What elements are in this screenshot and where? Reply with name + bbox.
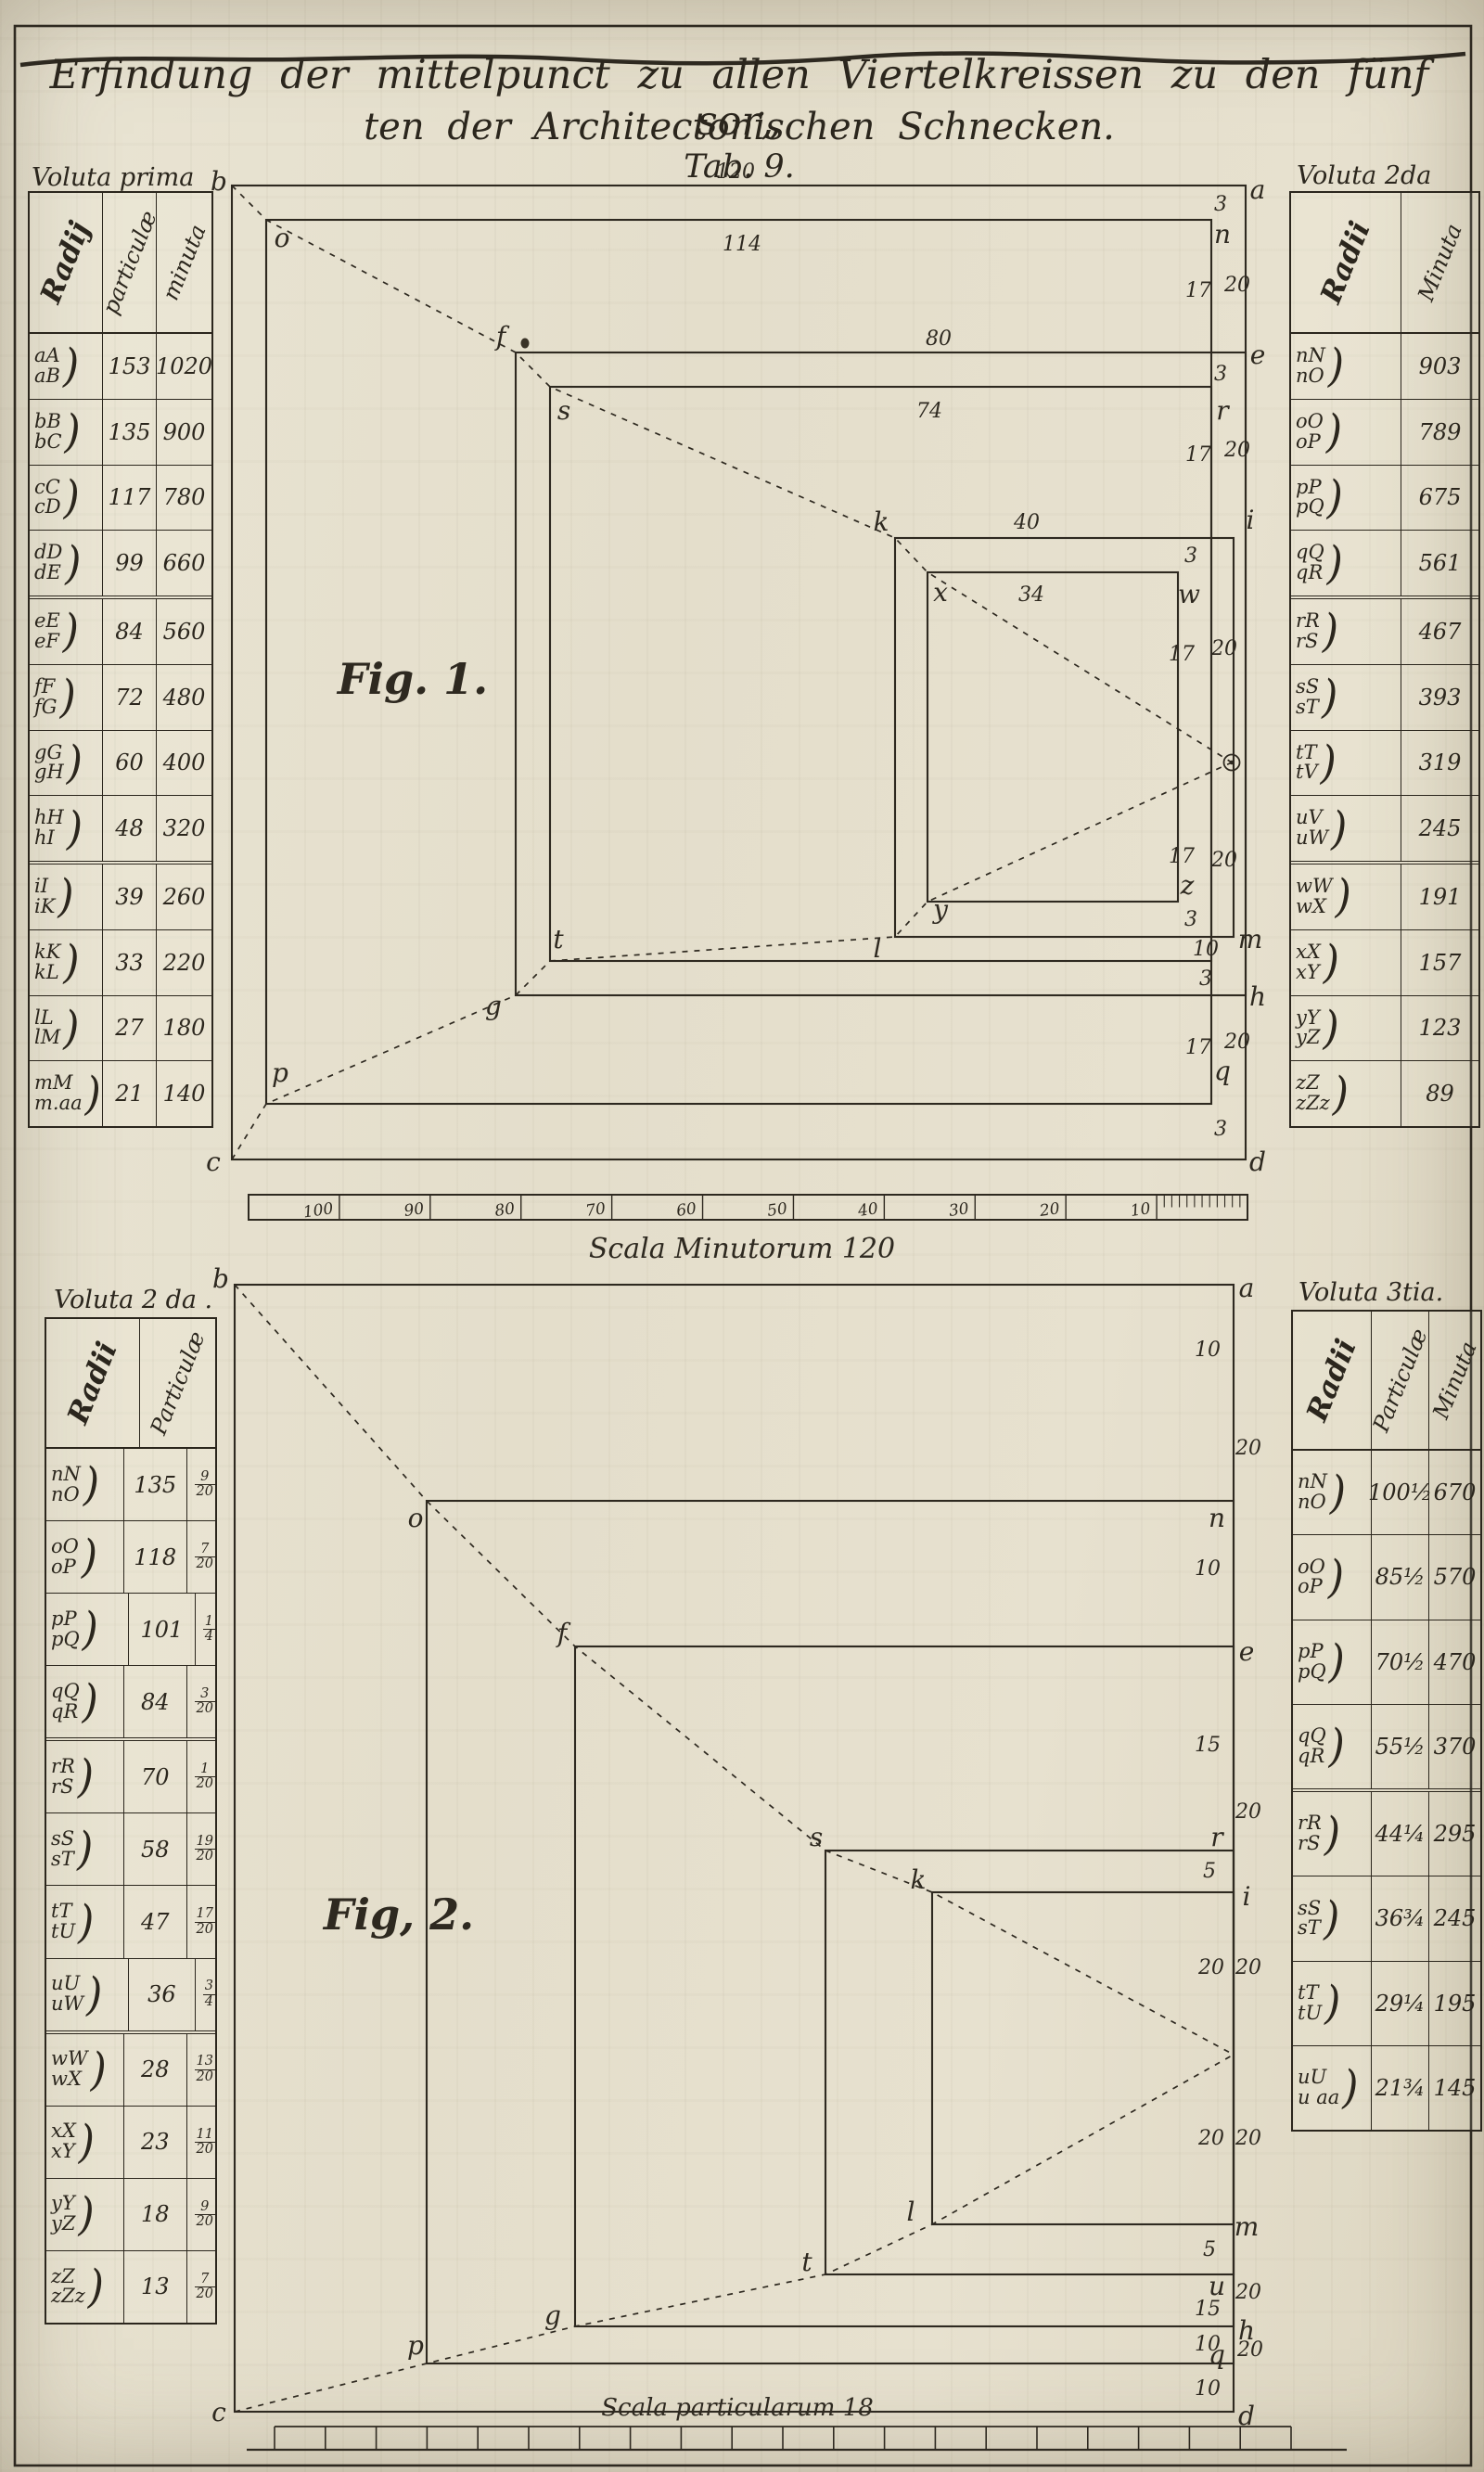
value-cell: 157 [1401, 930, 1478, 995]
figure-label: m [1238, 924, 1263, 954]
radius-pair-label: lLlM) [30, 996, 102, 1061]
radius-pair-label: xXxY) [1291, 930, 1401, 995]
table-row: nNnO)135920 [46, 1449, 215, 1521]
figure-label: 17 [1185, 279, 1211, 302]
figure-label: 17 [1185, 443, 1211, 467]
table-body: nNnO)903oOoP)789pPpQ)675qQqR)561rRrS)467… [1291, 334, 1478, 1126]
value-cell: 903 [1401, 334, 1478, 399]
radius-pair-label: oOoP) [1293, 1535, 1371, 1619]
figure-label: d [1249, 1146, 1266, 1177]
radius-pair-label: hHhI) [30, 796, 102, 861]
radius-pair-label: pPpQ) [46, 1594, 128, 1665]
value-cell: 153 [102, 334, 156, 399]
table-row: bBbC)135900 [30, 400, 211, 466]
value-cell: 720 [186, 2251, 215, 2323]
table-row: uUu aa)21¾145 [1293, 2046, 1480, 2130]
value-cell: 118 [123, 1521, 186, 1593]
table-row: tTtU)29¼195 [1293, 1962, 1480, 2046]
table-row: qQqR)55½370 [1293, 1705, 1480, 1792]
table-row: tTtV)319 [1291, 731, 1478, 797]
fig1-drawing: bacd120114on31720f80e3s74r1720k40i3x34w1… [206, 160, 1266, 1177]
table-row: cCcD)117780 [30, 466, 211, 532]
value-cell: 34 [195, 1959, 215, 2030]
radius-pair-label: xXxY) [46, 2107, 123, 2178]
radius-pair-label: mMm.aa) [30, 1061, 102, 1126]
value-cell: 561 [1401, 531, 1478, 596]
table-row: oOoP)85½570 [1293, 1535, 1480, 1620]
value-cell: 920 [186, 2179, 215, 2250]
table-voluta-2da-minuta: RadiiMinutanNnO)903oOoP)789pPpQ)675qQqR)… [1289, 191, 1480, 1128]
radius-pair-label: rRrS) [46, 1741, 123, 1812]
pair-brace: ) [78, 1751, 94, 1803]
table-row: nNnO)903 [1291, 334, 1478, 400]
pair-brace: ) [1328, 1551, 1344, 1603]
pair-brace: ) [60, 672, 76, 724]
pair-brace: ) [1329, 1636, 1345, 1688]
pair-brace: ) [86, 1968, 102, 2020]
pair-brace: ) [63, 1002, 79, 1054]
value-cell: 260 [156, 865, 211, 929]
pair-brace: ) [83, 1604, 98, 1656]
value-cell: 675 [1401, 466, 1478, 531]
column-header: Particulæ [1371, 1312, 1428, 1449]
value-cell: 101 [128, 1594, 195, 1665]
column-header: Radii [1293, 1312, 1371, 1449]
scala-particularum: Scala particularum 18 [247, 2394, 1347, 2450]
plate-title-line2: ten der Architectonischen Schnecken. [28, 106, 1451, 148]
value-cell: 320 [186, 1666, 215, 1737]
figure-label: 20 [1197, 1956, 1224, 1979]
figure-label: 10 [1193, 938, 1219, 961]
nested-square [825, 1851, 1234, 2274]
pair-brace: ) [91, 2043, 107, 2095]
scale-tick-label: 40 [856, 1199, 879, 1221]
radius-pair-label: sSsT) [46, 1813, 123, 1885]
value-cell: 89 [1401, 1061, 1478, 1126]
table-row: pPpQ)675 [1291, 466, 1478, 532]
figure-label: 20 [1235, 1956, 1261, 1979]
radius-pair-label: pPpQ) [1291, 466, 1401, 531]
pair-brace: ) [1333, 1068, 1349, 1120]
radius-pair-label: oOoP) [46, 1521, 123, 1593]
value-cell: 123 [1401, 996, 1478, 1061]
tab-number: Tab. 9. [28, 148, 1451, 186]
column-header: Radii [1291, 193, 1401, 332]
radius-pair-label: eEeF) [30, 599, 102, 664]
pair-brace: ) [58, 871, 73, 923]
pair-brace: ) [82, 1531, 97, 1583]
figure-label: 40 [1013, 511, 1040, 534]
scale-tick-label: 60 [675, 1199, 697, 1221]
figure-label: 15 [1195, 2298, 1221, 2321]
figure-label: 3 [1214, 363, 1227, 386]
figure-label: 3 [1184, 544, 1197, 568]
table-body: aAaB)1531020bBbC)135900cCcD)117780dDdE)9… [30, 334, 211, 1126]
table-row: zZzZz)89 [1291, 1061, 1478, 1126]
figure-label: i [1247, 505, 1255, 535]
value-cell: 467 [1401, 599, 1478, 664]
radius-pair-label: rRrS) [1291, 599, 1401, 664]
value-cell: 319 [1401, 731, 1478, 796]
figure-label: 20 [1223, 1031, 1250, 1054]
pair-brace: ) [1330, 1467, 1346, 1518]
figure-label: y [931, 894, 949, 925]
figure-label: 3 [1184, 908, 1197, 931]
radius-pair-label: yYyZ) [46, 2179, 123, 2250]
value-cell: 55½ [1371, 1705, 1428, 1788]
figure-label: q [1209, 2339, 1225, 2370]
radius-pair-label: nNnO) [46, 1449, 123, 1520]
figure-label: 20 [1197, 2127, 1224, 2150]
pair-brace: ) [85, 1068, 101, 1120]
figure-label: x [933, 577, 948, 608]
value-cell: 120 [186, 1741, 215, 1812]
table-header-row: Radijparticulæminuta [30, 193, 211, 334]
plate-canvas: bacd120114on31720f80e3s74r1720k40i3x34w1… [0, 0, 1484, 2472]
table-body: nNnO)100½670oOoP)85½570pPpQ)70½470qQqR)5… [1293, 1451, 1480, 2130]
value-cell: 60 [102, 731, 156, 796]
pair-brace: ) [1324, 937, 1339, 989]
table-row: gGgH)60400 [30, 731, 211, 797]
value-cell: 670 [1428, 1451, 1480, 1534]
figure-label: g [485, 991, 502, 1021]
figure-label: 10 [1195, 2377, 1221, 2401]
figure-label: 5 [1203, 2238, 1216, 2261]
figure-label: l [874, 933, 882, 964]
value-cell: 1320 [186, 2034, 215, 2106]
table-row: yYyZ)123 [1291, 996, 1478, 1062]
nested-square [235, 1285, 1234, 2412]
figure-label: f [494, 321, 510, 352]
value-cell: 85½ [1371, 1535, 1428, 1619]
figure-label: z [1180, 870, 1195, 901]
pair-brace: ) [1324, 1892, 1339, 1944]
radius-pair-label: qQqR) [1291, 531, 1401, 596]
table-row: oOoP)118720 [46, 1521, 215, 1594]
value-cell: 180 [156, 996, 211, 1061]
figure-label: k [911, 1864, 927, 1895]
pair-brace: ) [79, 2116, 95, 2168]
table-row: qQqR)84320 [46, 1666, 215, 1741]
figure-label: e [1250, 339, 1266, 370]
figure-title: Fig, 2. [322, 1889, 474, 1940]
figure-label: 34 [1018, 583, 1044, 607]
column-header: minuta [156, 193, 211, 332]
nested-square [516, 352, 1246, 995]
radius-pair-label: cCcD) [30, 466, 102, 531]
scale-tick-label: 70 [584, 1199, 607, 1221]
table-row: dDdE)99660 [30, 531, 211, 599]
table-row: oOoP)789 [1291, 400, 1478, 466]
figure-label: p [272, 1057, 288, 1088]
caption-voluta-3tia: Voluta 3tia. [1298, 1278, 1443, 1307]
table-row: wWwX)281320 [46, 2034, 215, 2107]
value-cell: 140 [156, 1061, 211, 1126]
value-cell: 191 [1401, 865, 1478, 929]
value-cell: 480 [156, 665, 211, 730]
pair-brace: ) [1331, 802, 1347, 854]
radius-pair-label: tTtU) [1293, 1962, 1371, 2045]
pair-brace: ) [64, 471, 80, 523]
figure-label: 74 [916, 400, 942, 423]
table-row: rRrS)70120 [46, 1741, 215, 1813]
column-header: Radii [46, 1319, 139, 1447]
value-cell: 84 [123, 1666, 186, 1737]
pair-brace: ) [78, 1896, 94, 1948]
table-row: eEeF)84560 [30, 599, 211, 665]
pair-brace: ) [67, 736, 83, 788]
value-cell: 789 [1401, 400, 1478, 465]
scale-tick-label: 100 [302, 1199, 335, 1222]
figure-label: 3 [1214, 1118, 1227, 1141]
radius-pair-label: zZzZz) [46, 2251, 123, 2323]
radius-pair-label: aAaB) [30, 334, 102, 399]
table-voluta-3tia: RadiiParticulæMinutanNnO)100½670oOoP)85½… [1291, 1310, 1482, 2132]
pair-brace: ) [83, 1458, 99, 1510]
table-row: lLlM)27180 [30, 996, 211, 1062]
radius-pair-label: nNnO) [1291, 334, 1401, 399]
value-cell: 720 [186, 1521, 215, 1593]
table-row: aAaB)1531020 [30, 334, 211, 400]
figure-label: s [557, 395, 570, 426]
pair-brace: ) [1329, 1721, 1345, 1773]
radius-pair-label: fFfG) [30, 665, 102, 730]
pair-brace: ) [63, 937, 79, 989]
table-row: iIiK)39260 [30, 865, 211, 930]
value-cell: 1120 [186, 2107, 215, 2178]
figure-label: 15 [1195, 1734, 1221, 1757]
pair-brace: ) [65, 537, 81, 589]
figure-label: w [1178, 579, 1200, 609]
radius-pair-label: dDdE) [30, 531, 102, 596]
value-cell: 18 [123, 2179, 186, 2250]
figure-label: 20 [1235, 2281, 1261, 2304]
figure-label: c [206, 1146, 221, 1177]
pair-brace: ) [1327, 471, 1343, 523]
radius-pair-label: kKkL) [30, 930, 102, 995]
figure-label: r [1216, 395, 1230, 426]
scale-caption: Scala particularum 18 [601, 2394, 874, 2422]
value-cell: 70 [123, 1741, 186, 1812]
pair-brace: ) [1324, 1978, 1340, 2030]
column-header: particulæ [102, 193, 156, 332]
table-row: tTtU)471720 [46, 1886, 215, 1958]
pair-brace: ) [1324, 1808, 1340, 1860]
table-row: xXxY)231120 [46, 2107, 215, 2179]
table-row: pPpQ)10114 [46, 1594, 215, 1666]
pair-brace: ) [1326, 406, 1342, 458]
value-cell: 72 [102, 665, 156, 730]
figure-label: 3 [1199, 967, 1212, 991]
table-row: kKkL)33220 [30, 930, 211, 996]
radius-pair-label: rRrS) [1293, 1792, 1371, 1876]
value-cell: 145 [1428, 2046, 1480, 2130]
table-row: nNnO)100½670 [1293, 1451, 1480, 1535]
value-cell: 99 [102, 531, 156, 596]
figure-label: 5 [1203, 1860, 1216, 1883]
scale-caption: Scala Minutorum 120 [589, 1233, 895, 1265]
figure-label: 20 [1210, 849, 1237, 872]
volute-eye-center [1230, 761, 1235, 765]
pair-brace: ) [88, 2261, 104, 2312]
value-cell: 920 [186, 1449, 215, 1520]
value-cell: 195 [1428, 1962, 1480, 2045]
radius-pair-label: yYyZ) [1291, 996, 1401, 1061]
value-cell: 23 [123, 2107, 186, 2178]
radius-pair-label: uUu aa) [1293, 2046, 1371, 2130]
value-cell: 245 [1401, 796, 1478, 861]
table-row: pPpQ)70½470 [1293, 1620, 1480, 1705]
figure-label: t [801, 2247, 812, 2277]
figure-label: 17 [1185, 1036, 1211, 1059]
value-cell: 84 [102, 599, 156, 664]
value-cell: 1920 [186, 1813, 215, 1885]
figure-label: 10 [1195, 1557, 1221, 1581]
nested-square [932, 1892, 1234, 2224]
value-cell: 48 [102, 796, 156, 861]
figure-label: 20 [1210, 637, 1237, 660]
scale-tick-label: 10 [1130, 1199, 1152, 1221]
radius-pair-label: pPpQ) [1293, 1620, 1371, 1704]
figure-label: t [553, 924, 564, 954]
value-cell: 220 [156, 930, 211, 995]
table-header-row: RadiiMinuta [1291, 193, 1478, 334]
figure-label: 17 [1169, 845, 1195, 868]
value-cell: 570 [1428, 1535, 1480, 1619]
pair-brace: ) [1323, 606, 1338, 658]
table-row: wWwX)191 [1291, 865, 1478, 930]
figure-label: 20 [1223, 439, 1250, 462]
nested-square [550, 387, 1211, 961]
value-cell: 1020 [156, 334, 211, 399]
fig2-drawing: bacd1020on10fe1520sr5ki20202020lm5tu2015… [211, 1263, 1263, 2431]
radius-pair-label: sSsT) [1291, 665, 1401, 730]
construction-diagonal-dashed [235, 2055, 1234, 2412]
figure-label: o [408, 1503, 424, 1533]
figure-label: b [212, 1263, 229, 1294]
figure-label: f [556, 1618, 571, 1648]
table-row: sSsT)581920 [46, 1813, 215, 1886]
figure-label: r [1210, 1822, 1224, 1852]
radius-pair-label: nNnO) [1293, 1451, 1371, 1534]
figure-label: a [1239, 1273, 1255, 1303]
scale-tick-label: 90 [403, 1199, 425, 1221]
scale-tick-label: 30 [948, 1199, 970, 1221]
table-row: uVuW)245 [1291, 796, 1478, 865]
table-row: rRrS)467 [1291, 599, 1478, 665]
table-row: yYyZ)18920 [46, 2179, 215, 2251]
radius-pair-label: bBbC) [30, 400, 102, 465]
value-cell: 900 [156, 400, 211, 465]
table-voluta-prima: RadijparticulæminutaaAaB)1531020bBbC)135… [28, 191, 213, 1128]
radius-pair-label: sSsT) [1293, 1876, 1371, 1960]
engraved-plate: bacd120114on31720f80e3s74r1720k40i3x34w1… [0, 0, 1484, 2472]
table-header-row: RadiiParticulæMinuta [1293, 1312, 1480, 1451]
value-cell: 560 [156, 599, 211, 664]
table-header-row: RadiiParticulæ [46, 1319, 215, 1449]
radius-pair-label: tTtU) [46, 1886, 123, 1957]
ink-blot [521, 339, 530, 349]
table-row: zZzZz)13720 [46, 2251, 215, 2323]
figure-label: i [1243, 1881, 1251, 1912]
figure-label: n [1214, 219, 1231, 250]
table-row: rRrS)44¼295 [1293, 1792, 1480, 1876]
table-row: qQqR)561 [1291, 531, 1478, 599]
radius-pair-label: wWwX) [1291, 865, 1401, 929]
pair-brace: ) [1321, 736, 1337, 788]
scale-tick-label: 50 [766, 1199, 788, 1221]
radius-pair-label: uVuW) [1291, 796, 1401, 861]
radius-pair-label: zZzZz) [1291, 1061, 1401, 1126]
value-cell: 58 [123, 1813, 186, 1885]
table-row: fFfG)72480 [30, 665, 211, 731]
figure-label: k [874, 506, 889, 537]
value-cell: 21¾ [1371, 2046, 1428, 2130]
column-header: Minuta [1428, 1312, 1480, 1449]
figure-label: 17 [1169, 643, 1195, 666]
figure-label: c [211, 2397, 226, 2427]
scala-minutorum: 100908070605040302010Scala Minutorum 120 [249, 1195, 1247, 1265]
pair-brace: ) [1336, 871, 1351, 923]
pair-brace: ) [63, 606, 79, 658]
figure-label: 10 [1195, 1338, 1221, 1362]
figure-label: 20 [1223, 274, 1250, 297]
radius-pair-label: qQqR) [46, 1666, 123, 1737]
figure-title: Fig. 1. [336, 654, 488, 704]
value-cell: 47 [123, 1886, 186, 1957]
pair-brace: ) [67, 802, 83, 854]
value-cell: 21 [102, 1061, 156, 1126]
pair-brace: ) [63, 340, 79, 392]
figure-label: p [407, 2330, 424, 2361]
pair-brace: ) [77, 1824, 93, 1876]
caption-voluta-prima: Voluta prima [32, 163, 194, 192]
radius-pair-label: uUuW) [46, 1959, 128, 2030]
value-cell: 660 [156, 531, 211, 596]
table-row: hHhI)48320 [30, 796, 211, 865]
table-row: sSsT)36¾245 [1293, 1876, 1480, 1961]
value-cell: 400 [156, 731, 211, 796]
scale-tick-label: 20 [1038, 1199, 1061, 1221]
value-cell: 1720 [186, 1886, 215, 1957]
figure-label: 3 [1214, 193, 1227, 216]
column-header: Minuta [1401, 193, 1478, 332]
figure-label: o [275, 223, 290, 253]
value-cell: 135 [123, 1449, 186, 1520]
table-row: sSsT)393 [1291, 665, 1478, 731]
scale-bar [249, 1195, 1247, 1220]
value-cell: 393 [1401, 665, 1478, 730]
radius-pair-label: iIiK) [30, 865, 102, 929]
value-cell: 135 [102, 400, 156, 465]
figure-label: h [1249, 981, 1266, 1012]
column-header: Particulæ [139, 1319, 215, 1447]
value-cell: 36¾ [1371, 1876, 1428, 1960]
pair-brace: ) [1328, 340, 1344, 392]
figure-label: q [1214, 1056, 1231, 1086]
figure-label: m [1235, 2211, 1260, 2242]
figure-label: 114 [723, 233, 761, 256]
radius-pair-label: wWwX) [46, 2034, 123, 2106]
scale-tick-label: 80 [493, 1199, 516, 1221]
value-cell: 14 [195, 1594, 215, 1665]
value-cell: 36 [128, 1959, 195, 2030]
value-cell: 33 [102, 930, 156, 995]
value-cell: 29¼ [1371, 1962, 1428, 2045]
radius-pair-label: tTtV) [1291, 731, 1401, 796]
value-cell: 13 [123, 2251, 186, 2323]
caption-voluta-2da: Voluta 2da [1297, 161, 1431, 190]
